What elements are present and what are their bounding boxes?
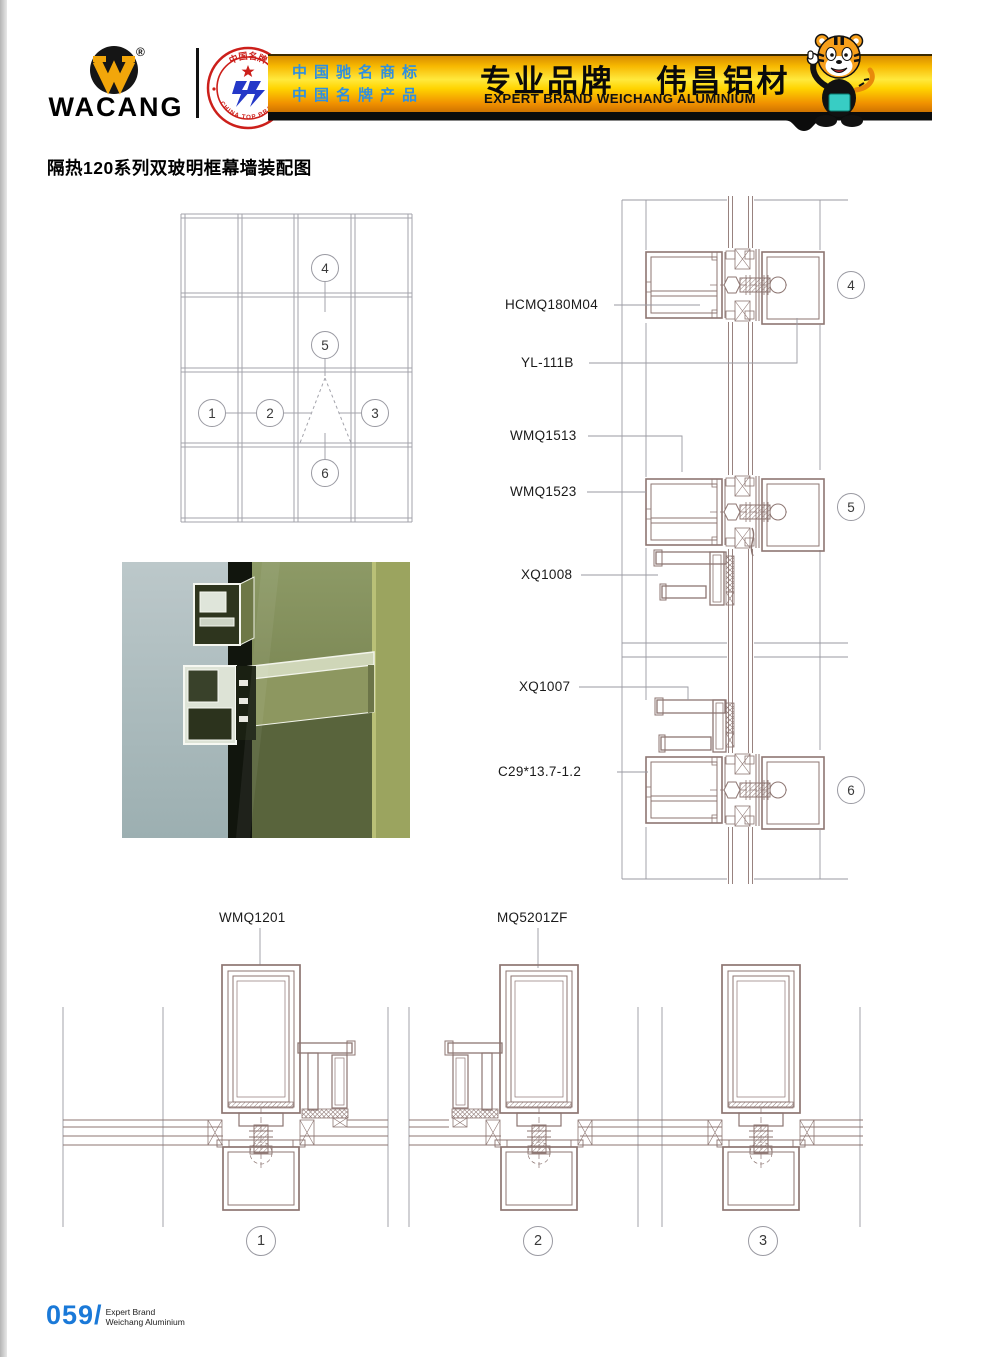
- part-label: XQ1008: [521, 567, 572, 582]
- section-callout-2: 2: [523, 1226, 553, 1256]
- elevation-callout-5: 5: [311, 331, 339, 359]
- section-callout-1: 1: [246, 1226, 276, 1256]
- banner-cn-line1: 中国驰名商标: [292, 62, 424, 85]
- footer-caption: Expert Brand Weichang Aluminium: [106, 1300, 185, 1327]
- banner-cn-line2: 中国名牌产品: [292, 85, 424, 108]
- page-title: 隔热120系列双玻明框幕墙装配图: [47, 155, 312, 180]
- page-number: 059/: [46, 1300, 103, 1330]
- detail-callout-5: 5: [837, 493, 865, 521]
- part-label: YL-111B: [521, 355, 574, 370]
- detail-callout-4: 4: [837, 271, 865, 299]
- part-label: XQ1007: [519, 679, 570, 694]
- elevation-callout-2: 2: [256, 399, 284, 427]
- catalog-page: ® WACANG 中国名牌 CHINA TOP BRAND: [0, 0, 1000, 1357]
- profile-3d-photo: [122, 562, 410, 838]
- banner-slogan-en: EXPERT BRAND WEICHANG ALUMINIUM: [484, 91, 756, 106]
- part-label: C29*13.7-1.2: [498, 764, 581, 779]
- footer: 059/ Expert Brand Weichang Aluminium: [46, 1300, 185, 1330]
- mullion-section-drawings: [40, 905, 960, 1260]
- elevation-callout-6: 6: [311, 459, 339, 487]
- section-callout-3: 3: [748, 1226, 778, 1256]
- part-label: WMQ1201: [219, 910, 286, 925]
- detail-callout-6: 6: [837, 776, 865, 804]
- footer-caption-line2: Weichang Aluminium: [106, 1317, 185, 1327]
- brand-name: WACANG: [40, 92, 192, 123]
- tiger-mascot-icon: [798, 28, 880, 128]
- part-label: WMQ1523: [510, 484, 577, 499]
- header-divider: [196, 48, 199, 118]
- elevation-callout-4: 4: [311, 254, 339, 282]
- part-label: WMQ1513: [510, 428, 577, 443]
- footer-caption-line1: Expert Brand: [106, 1307, 185, 1317]
- registered-trademark: ®: [136, 45, 145, 59]
- banner-cn-lines: 中国驰名商标 中国名牌产品: [292, 62, 424, 107]
- part-label: HCMQ180M04: [505, 297, 598, 312]
- part-label: MQ5201ZF: [497, 910, 568, 925]
- elevation-callout-3: 3: [361, 399, 389, 427]
- scan-edge: [0, 0, 7, 1357]
- elevation-callout-1: 1: [198, 399, 226, 427]
- elevation-drawing: [150, 200, 450, 530]
